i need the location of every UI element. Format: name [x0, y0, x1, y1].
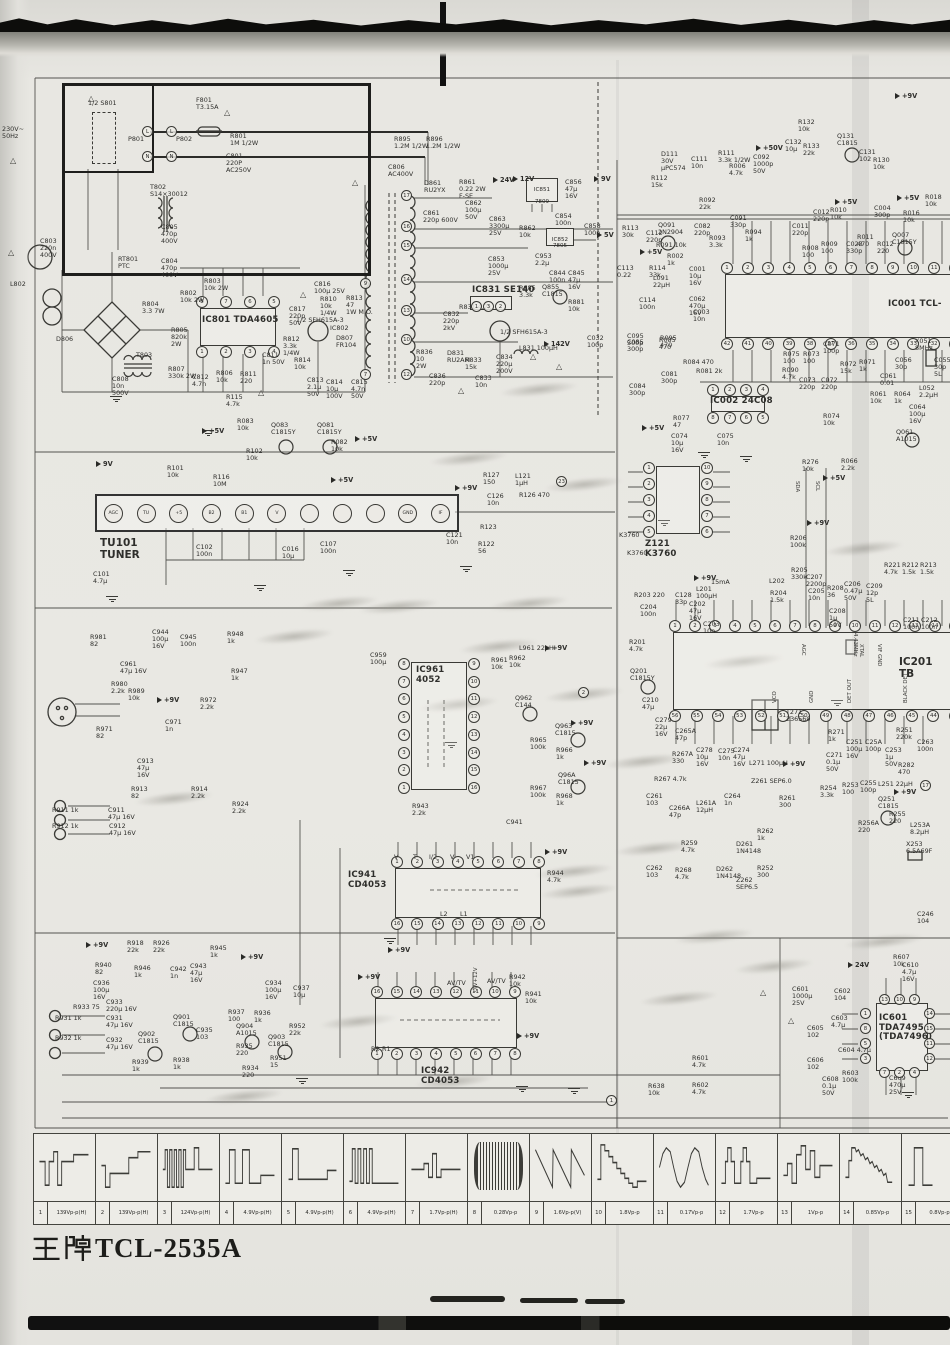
component-label: R981 82 [90, 634, 107, 648]
component-label: C084 300p [629, 383, 646, 397]
ic-pin: 7 [398, 676, 410, 688]
component-label: C813 2.1μ 50V [307, 377, 324, 399]
model-title: TCL-2535A [33, 1232, 242, 1264]
component-label: R896 1.2M 1/2W [426, 136, 460, 150]
component-label: GND [809, 691, 815, 703]
component-label: T802 S14×30012 [150, 184, 188, 198]
component-label: C945 100n [180, 634, 197, 648]
component-label: △ [300, 291, 306, 300]
ic-pin: 5 [268, 296, 280, 308]
component-label: R010 10k [830, 207, 847, 221]
pin-ref: 7 [360, 369, 371, 380]
ic852-regulator: IC852 7805 [546, 228, 574, 246]
component-label: R812 3.3k 1/4W [283, 336, 300, 358]
ic-pin: 4 [783, 262, 795, 274]
tuner-pin: AGC [104, 504, 123, 523]
component-label: R081 2k [696, 368, 722, 375]
waveform-number: 15 [902, 1202, 916, 1224]
component-label: C856 47μ 16V [565, 179, 582, 201]
component-label: R966 1k [556, 747, 573, 761]
pin-ref: 16 [401, 221, 412, 232]
waveform-value: 1.7Vp-p [730, 1202, 777, 1224]
waveform-plot [96, 1134, 157, 1202]
component-label: C603 4.7μ [831, 1015, 848, 1029]
component-label: C853 1000μ 25V [488, 256, 508, 278]
component-label: R989 10k [128, 688, 145, 702]
component-label: C854 100n [555, 213, 572, 227]
waveform-cell: 110.17Vp-p [654, 1134, 716, 1224]
component-label: R933 75 [73, 1004, 100, 1011]
scan-smear [585, 1299, 625, 1304]
waveform-value: 1Vp-p [792, 1202, 839, 1224]
ic942-analog-switch: 161514131211109 12345678 [370, 986, 522, 1060]
component-label: C815 4.7n 50V [351, 379, 368, 401]
component-label: R018 10k [925, 194, 942, 208]
component-label: C056 30p [895, 357, 912, 371]
component-label: C959 100μ [370, 652, 387, 666]
component-label: R951 15 [270, 1055, 287, 1069]
waveform-cell: 54.9Vp-p(H) [282, 1134, 344, 1224]
ic-pin: 1 [398, 782, 410, 794]
component-label: C107 100n [320, 541, 337, 555]
component-label: R066 2.2k [841, 458, 858, 472]
component-label: +9V [571, 720, 593, 727]
component-label: +5V [642, 425, 664, 432]
component-label: L121 1μH [515, 473, 531, 487]
waveform-number: 12 [716, 1202, 730, 1224]
component-label: R201 4.7k [629, 639, 646, 653]
ic-pin: 44 [927, 710, 939, 722]
waveform-cell: 80.28Vp-p [468, 1134, 530, 1224]
ic-pin: 14 [410, 986, 422, 998]
component-label: R221 4.7k [884, 562, 901, 576]
component-label: R082 10k [331, 439, 348, 453]
component-label: C811 1n 50V [262, 352, 285, 366]
pin-ref: 1 [471, 301, 482, 312]
ic-pin: 11 [928, 262, 940, 274]
component-label: C206 0.47μ 50V [844, 581, 862, 603]
component-label: R255 220 [889, 811, 906, 825]
component-label: R203 220 [634, 592, 665, 599]
scan-shadow-band [0, 31, 950, 57]
scan-smear [520, 1298, 578, 1303]
component-label: R084 470 [683, 359, 714, 366]
component-label: R282 470 [898, 762, 915, 776]
component-label: +9V [455, 485, 477, 492]
ic-pin: 5 [398, 711, 410, 723]
schematic-sheet: IC851 7809 IC852 7805 8765 1234 12345678… [0, 0, 950, 1345]
component-label: R895 1.2M 1/2W [394, 136, 428, 150]
ic-pin: 10 [701, 462, 713, 474]
ic-pin: 1 [721, 262, 733, 274]
component-label: F801 T3.15A [196, 97, 219, 111]
waveform-strip: 1139Vp-p(H)2139Vp-p(H)3124Vp-p(H)44.9Vp-… [33, 1133, 950, 1225]
component-label: +9V [517, 1033, 539, 1040]
component-label: R132 10k [798, 119, 815, 133]
component-label: R941 10k [525, 991, 542, 1005]
component-label: C061 0.01 [880, 373, 897, 387]
component-label: R967 100k [530, 785, 547, 799]
ic-pin: 4 [643, 510, 655, 522]
component-label: C278 10μ 16V [696, 747, 713, 769]
component-label: C102 100n [196, 544, 213, 558]
ic-pin: 11 [492, 918, 504, 930]
component-label: R938 1k [173, 1057, 190, 1071]
component-label: K3760 [627, 550, 647, 557]
ic-pin: 3 [740, 384, 752, 396]
component-label: IC942 CD4053 [421, 1067, 460, 1086]
component-label: R276 10k [802, 459, 819, 473]
component-label: R2 [371, 1046, 380, 1053]
component-label: C121 10n [446, 532, 463, 546]
component-label: R936 1k [254, 1010, 271, 1024]
component-label: IC801 TDA4605 [202, 316, 279, 326]
ic-pin: 2 [742, 262, 754, 274]
component-label: R944 4.7k [547, 870, 564, 884]
component-label: R002 1k [667, 253, 684, 267]
pin-ref: 13 [879, 994, 890, 1005]
waveform-cell: 64.9Vp-p(H) [344, 1134, 406, 1224]
component-label: R810 10k 1/4W [320, 296, 337, 318]
ic-pin: 8 [707, 412, 719, 424]
ic-pin: 1 [643, 462, 655, 474]
component-label: AGC [800, 644, 806, 656]
waveform-value: 4.9Vp-p(H) [234, 1202, 281, 1224]
component-label: C064 100μ 16V [909, 404, 926, 426]
component-label: +9V [388, 947, 410, 954]
ic-pin: 10 [907, 262, 919, 274]
component-label: R813 47 1W M.O. [346, 295, 373, 317]
component-label: DET OUT [847, 679, 853, 703]
component-label: IC802 [330, 325, 349, 332]
component-label: C25A 100p [865, 739, 882, 753]
ic-pin: 8 [866, 262, 878, 274]
ic-pin: 52 [755, 710, 767, 722]
tuner-pin [333, 504, 352, 523]
tuner-pin [366, 504, 385, 523]
component-label: R945 1k [210, 945, 227, 959]
component-label: C834 220μ 200V [496, 354, 513, 376]
ground-symbol [740, 456, 752, 464]
ic-pin: 36 [845, 338, 857, 350]
ground-symbol [106, 596, 118, 604]
rca-jack [50, 1048, 61, 1059]
ic-pin: 9 [701, 478, 713, 490]
component-label: R254 3.3k [820, 785, 837, 799]
ic-pin: 35 [866, 338, 878, 350]
component-label: R939 1k [132, 1059, 149, 1073]
component-label: U/V+12V [473, 967, 479, 992]
ic-pin: 16 [468, 782, 480, 794]
component-label: 24V [848, 962, 869, 969]
component-label: +9V [584, 760, 606, 767]
component-label: C113 0.22 [617, 265, 634, 279]
component-label: T803 [136, 352, 152, 359]
pin-ref: N [142, 151, 153, 162]
burst-waveform [474, 1142, 523, 1190]
ic-pin: 4 [729, 620, 741, 632]
pin-ref: L [166, 126, 177, 137]
waveform-number: 1 [34, 1202, 48, 1224]
pin-ref: 12 [924, 1053, 935, 1064]
ic-pin: 7 [220, 296, 232, 308]
component-label: R968 1k [556, 793, 573, 807]
tuner-pin: TU [137, 504, 156, 523]
component-label: 142V [544, 341, 570, 348]
component-label: C204 100n [640, 604, 657, 618]
ic-pin: 41 [742, 338, 754, 350]
component-label: D261 1N4148 [736, 841, 761, 855]
component-label: TU101 TUNER [100, 538, 140, 562]
component-label: R122 56 [478, 541, 495, 555]
ic-pin: 49 [820, 710, 832, 722]
ic-pin: 12 [889, 620, 901, 632]
ic-pin: 5 [643, 526, 655, 538]
component-label: Z121 K3760 [645, 540, 677, 559]
component-label: C011 220p [792, 223, 809, 237]
component-label: C942 1n [170, 966, 187, 980]
component-label: P802 [176, 136, 192, 143]
component-label: R061 10k [870, 391, 887, 405]
waveform-number: 8 [468, 1202, 482, 1224]
ic-pin: 13 [430, 986, 442, 998]
component-label: R093 3.3k [709, 235, 726, 249]
component-label: R803 10k 2W [204, 278, 228, 292]
component-label: +5V [640, 249, 662, 256]
component-label: R861 0.22 2W F-SE [459, 179, 486, 201]
component-label: C210 47μ [642, 697, 659, 711]
component-label: R130 10k [873, 157, 890, 171]
component-label: R862 10k [519, 225, 536, 239]
ground-symbol [343, 570, 355, 578]
waveform-number: 11 [654, 1202, 668, 1224]
ic-pin: 6 [244, 296, 256, 308]
ic-pin: 10 [489, 986, 501, 998]
waveform-plot [34, 1134, 95, 1202]
component-label: R971 82 [96, 726, 113, 740]
component-label: C937 10μ [293, 985, 310, 999]
component-label: L2 [440, 911, 448, 918]
component-label: 24V [493, 177, 514, 184]
ic-pin: 8 [398, 658, 410, 670]
component-label: +9V [895, 93, 917, 100]
component-label: R126 470 [519, 492, 550, 499]
component-label: +9V [807, 520, 829, 527]
waveform-number: 3 [158, 1202, 172, 1224]
component-label: R251 220k [896, 727, 913, 741]
component-label: R881 10k [568, 299, 585, 313]
scan-bar-bottom [28, 1316, 950, 1330]
tuner-pin [300, 504, 319, 523]
ic-pin: 2 [724, 384, 736, 396]
component-label: V1 [466, 854, 474, 861]
component-label: C114 100n [639, 297, 656, 311]
ic-pin: 1 [669, 620, 681, 632]
component-label: △ [10, 157, 16, 166]
din-connector [48, 698, 76, 726]
component-label: C808 10n 500V [112, 376, 129, 398]
component-label: R113 30k [622, 225, 639, 239]
ground-symbol [698, 452, 710, 460]
ic-pin: 10 [468, 676, 480, 688]
ic-pin: 34 [887, 338, 899, 350]
component-label: C816 100μ 25V [314, 281, 345, 295]
component-label: R940 82 [95, 962, 112, 976]
waveform-plot [344, 1134, 405, 1202]
component-label: IC831 SE140 [472, 286, 535, 296]
ic-pin: 9 [533, 918, 545, 930]
component-label: V [394, 854, 398, 861]
component-label: L253A 8.2μH [910, 822, 930, 836]
component-label: △ [8, 249, 14, 258]
component-label: Q251 C1815 [878, 796, 899, 810]
ic-pin: 5 [757, 412, 769, 424]
component-label: C004 300p [874, 205, 891, 219]
ic-pin: 48 [841, 710, 853, 722]
component-label: 230V~ 50Hz [2, 126, 24, 140]
component-label: C205 10n [808, 588, 825, 602]
component-label: R934 220 [242, 1065, 259, 1079]
switch-s801 [92, 112, 116, 164]
component-label: R814 10k [294, 357, 311, 371]
pin-ref: 1 [860, 1008, 871, 1019]
component-label: +9V [157, 697, 179, 704]
pin-ref: 7 [879, 1067, 890, 1078]
ic-name: 7805 [553, 243, 567, 249]
component-label: R946 1k [134, 965, 151, 979]
waveform-plot [530, 1134, 591, 1202]
component-label: R073 100 [803, 351, 820, 365]
component-label: Q855 C1815 [542, 284, 563, 298]
model-number: TCL-2535A [95, 1233, 242, 1264]
ic-pin: 10 [513, 918, 525, 930]
waveform-cell: 44.9Vp-p(H) [220, 1134, 282, 1224]
ic-pin: 1 [196, 346, 208, 358]
waveform-number: 7 [406, 1202, 420, 1224]
component-label: R924 2.2k [232, 801, 249, 815]
pin-ref: N [166, 151, 177, 162]
ic-pin: 3 [244, 346, 256, 358]
component-label: R268 4.7k [675, 867, 692, 881]
component-label: +9V [241, 954, 263, 961]
component-label: C085 300p [627, 339, 644, 353]
component-label: R912 1k [52, 823, 78, 830]
waveform-plot [902, 1134, 950, 1202]
ic-pin: 3 [762, 262, 774, 274]
component-label: C265A 47p [675, 728, 696, 742]
pin-ref: 14 [924, 1008, 935, 1019]
component-label: R206 100k [790, 535, 807, 549]
component-label: C971 1n [165, 719, 182, 733]
ic-pin: 14 [468, 747, 480, 759]
ic-pin: 5 [804, 262, 816, 274]
component-label: C263 100n [917, 739, 934, 753]
waveform-number: 9 [530, 1202, 544, 1224]
z121-reset-ic: 12345 109876 [643, 462, 713, 538]
ic-pin: 6 [701, 526, 713, 538]
component-label: R083 10k [237, 418, 254, 432]
component-label: +5V [897, 195, 919, 202]
component-label: C803 220n 400V [40, 238, 57, 260]
component-label: R252 300 [757, 865, 774, 879]
component-label: P801 [128, 136, 144, 143]
component-label: D806 [56, 336, 73, 343]
component-label: SCL [814, 481, 820, 491]
component-label: Q962 C144 [515, 695, 532, 709]
waveform-cell: 131Vp-p [778, 1134, 840, 1224]
waveform-value: 1.7Vp-p(H) [420, 1202, 467, 1224]
waveform-value: 0.8Vp-p [916, 1202, 950, 1224]
component-label: R075 100 [783, 351, 800, 365]
waveform-value: 0.85Vp-p [854, 1202, 901, 1224]
component-label: △ [88, 95, 94, 104]
component-label: C208 1μ 50V [829, 608, 846, 630]
ic-pin: 15 [411, 918, 423, 930]
pin-ref: 14 [401, 274, 412, 285]
ic-pin: 6 [769, 620, 781, 632]
ic-pin: 2 [643, 478, 655, 490]
waveform-cell: 140.85Vp-p [840, 1134, 902, 1224]
pin-ref: 15 [401, 240, 412, 251]
component-label: C863 3300μ 25V [489, 216, 509, 238]
component-label: C601 1000μ 25V [792, 986, 812, 1008]
ic-pin: 4 [398, 729, 410, 741]
ic-pin: 6 [470, 1048, 482, 1060]
component-label: L091 22μH [653, 275, 670, 289]
component-label: R943 2.2k [412, 803, 429, 817]
component-label: R914 2.2k [191, 786, 208, 800]
waveform-cell: 3124Vp-p(H) [158, 1134, 220, 1224]
pin-ref: 1 [606, 1095, 617, 1106]
component-label: C861 220p 600V [423, 210, 458, 224]
ic-pin: 38 [804, 338, 816, 350]
component-label: C209 12p 5L [866, 583, 883, 605]
ic941-analog-switch: 12345678 161514131211109 [390, 856, 546, 930]
component-label: Q903 C1815 [268, 1034, 289, 1048]
component-label: C055 30p 5L [934, 357, 950, 379]
component-label: R204 1.5k [770, 590, 787, 604]
component-label: XTAL [858, 644, 864, 657]
component-label: C001 10μ 16V [689, 266, 706, 288]
ic-pin: 11 [468, 693, 480, 705]
component-label: Q083 C1815Y [271, 422, 296, 436]
component-label: R261 300 [779, 795, 796, 809]
component-label: R932 1k [55, 1035, 81, 1042]
pin-ref: 10 [401, 334, 412, 345]
component-label: C016 10μ [282, 546, 299, 560]
component-label: R101 10k [167, 465, 184, 479]
component-label: IC001 TCL- [888, 300, 942, 310]
component-label: C608 0.1μ 50V [822, 1076, 839, 1098]
component-label: R267A 330 [672, 751, 693, 765]
ground-symbol [296, 1078, 308, 1086]
ic-pin: 8 [809, 620, 821, 632]
component-label: R806 10k [216, 370, 233, 384]
component-label: △ [556, 363, 562, 372]
component-label: R1 [382, 1046, 391, 1053]
component-label: C609 470μ 25V [889, 1075, 906, 1097]
waveform-plot [158, 1134, 219, 1202]
component-label: X253 6.5A69F [906, 841, 932, 855]
ic-pin: 5 [450, 1048, 462, 1060]
tuner-pin: +5 [169, 504, 188, 523]
component-label: X051 8MHz [915, 338, 933, 352]
component-label: C264 1n [724, 793, 741, 807]
ic-pin: 7 [701, 510, 713, 522]
component-label: R085 470 [659, 337, 676, 351]
component-label: C806 AC400V [388, 164, 413, 178]
waveform-plot [716, 1134, 777, 1202]
